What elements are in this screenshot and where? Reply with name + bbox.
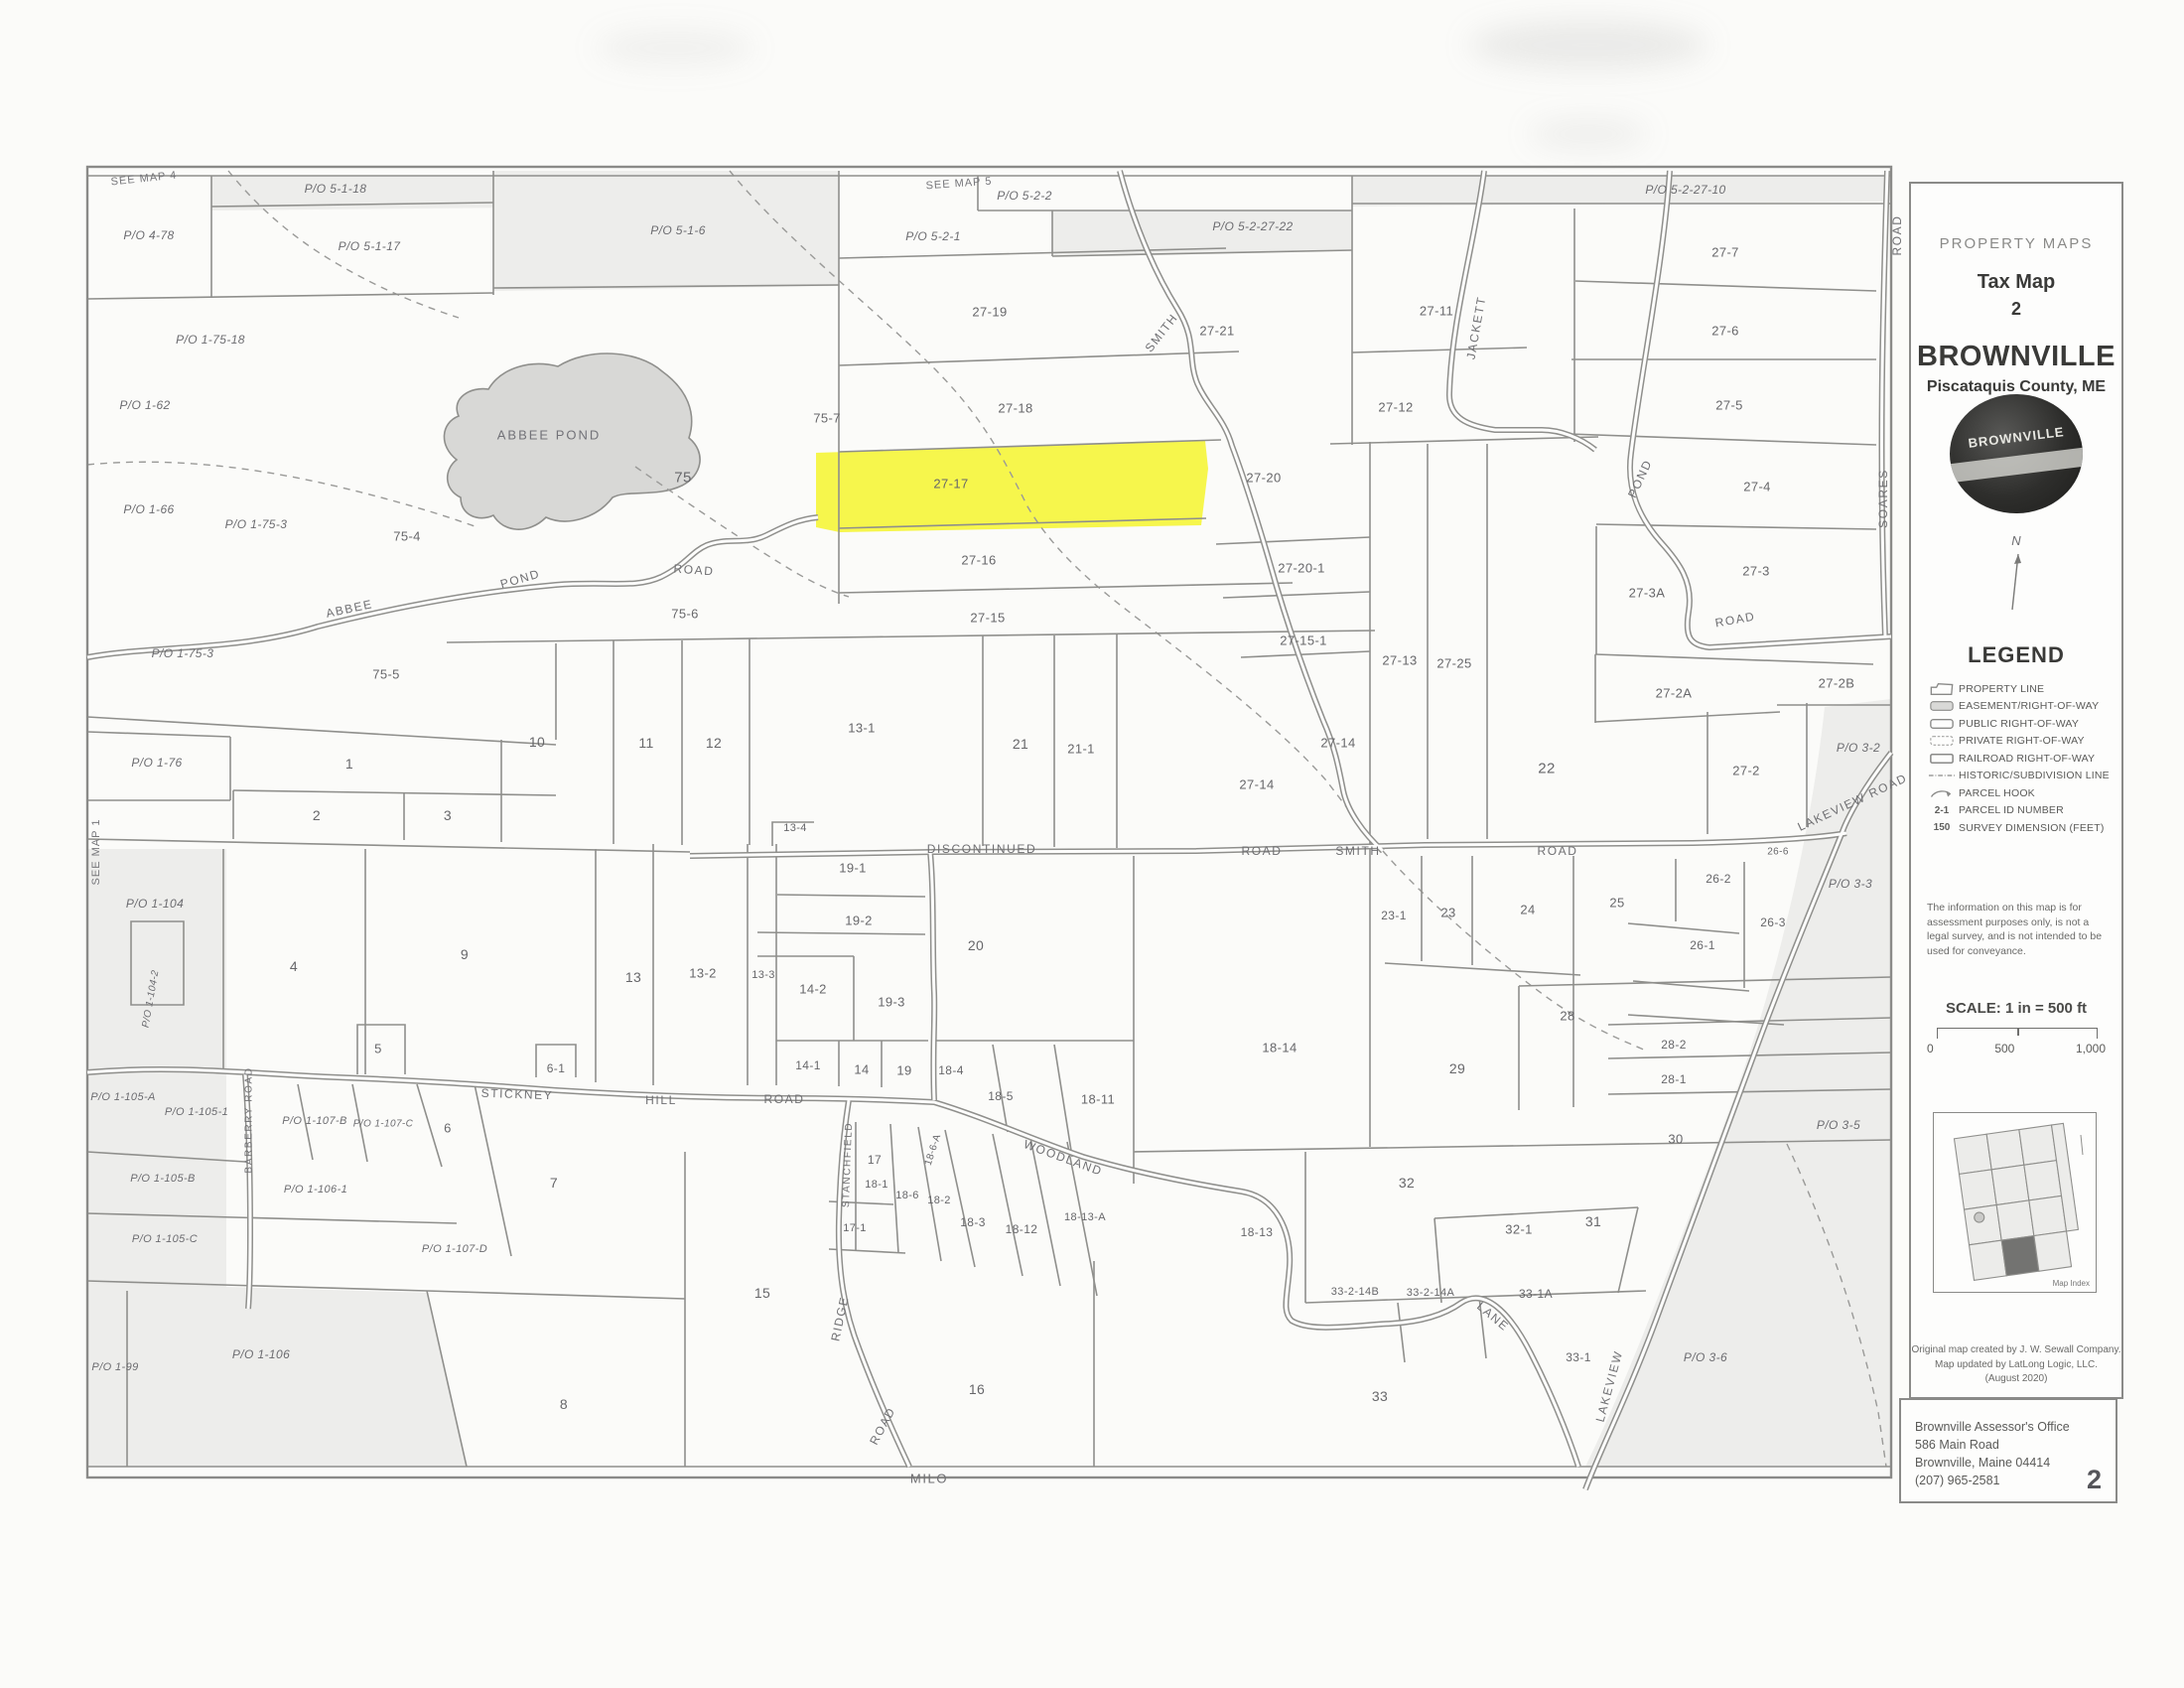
railroad-row-icon: [1925, 753, 1959, 765]
credit-line: (August 2020): [1911, 1372, 2121, 1387]
legend-item-label: RAILROAD RIGHT-OF-WAY: [1959, 753, 2095, 765]
map-number: 2: [1911, 299, 2121, 320]
town-seal-logo: BROWNVILLE: [1950, 394, 2083, 513]
easement-row-icon: [1925, 700, 1959, 712]
parcel-lines: [87, 171, 1891, 1467]
legend-item: 2-1PARCEL ID NUMBER: [1925, 802, 2114, 820]
credit-line: Original map created by J. W. Sewall Com…: [1911, 1343, 2121, 1358]
legend-items: PROPERTY LINEEASEMENT/RIGHT-OF-WAYPUBLIC…: [1925, 680, 2114, 837]
legend-item-label: PARCEL HOOK: [1959, 787, 2035, 799]
historic-line-icon: [1925, 772, 1959, 779]
legend-title: LEGEND: [1911, 642, 2121, 668]
legend-item: 150SURVEY DIMENSION (FEET): [1925, 819, 2114, 837]
office-line: (207) 965-2581: [1915, 1472, 2070, 1489]
credits-text: Original map created by J. W. Sewall Com…: [1911, 1343, 2121, 1387]
scale-label: SCALE: 1 in = 500 ft: [1911, 1000, 2121, 1017]
map-index-label: Map Index: [2053, 1279, 2090, 1288]
public-row-icon: [1925, 718, 1959, 730]
parcel-map: [0, 0, 2184, 1688]
survey-dim-icon: 150: [1925, 822, 1959, 833]
legend-item: PRIVATE RIGHT-OF-WAY: [1925, 733, 2114, 751]
scale-bar: [1937, 1028, 2098, 1039]
legend-item: HISTORIC/SUBDIVISION LINE: [1925, 768, 2114, 785]
legend-item-label: PARCEL ID NUMBER: [1959, 804, 2064, 816]
shaded-parcels: [87, 171, 1891, 1467]
tax-map-sheet: SEE MAP 4SEE MAP 5SEE MAP 1P/O 5-1-18P/O…: [0, 0, 2184, 1688]
legend-item: RAILROAD RIGHT-OF-WAY: [1925, 750, 2114, 768]
page-number: 2: [2087, 1465, 2102, 1495]
legend-item: EASEMENT/RIGHT-OF-WAY: [1925, 698, 2114, 716]
north-arrow: N: [2004, 533, 2028, 619]
scale-ticks: 05001,000: [1927, 1042, 2106, 1055]
map-index-inset: Map Index: [1933, 1112, 2097, 1293]
credit-line: Map updated by LatLong Logic, LLC.: [1911, 1358, 2121, 1373]
parcel-id-icon: 2-1: [1925, 805, 1959, 816]
parcel-hook-icon: [1925, 786, 1959, 800]
legend-item: PARCEL HOOK: [1925, 784, 2114, 802]
panel-header: PROPERTY MAPS: [1911, 235, 2121, 252]
legend-item-label: HISTORIC/SUBDIVISION LINE: [1959, 770, 2110, 781]
legend-item: PROPERTY LINE: [1925, 680, 2114, 698]
office-line: 586 Main Road: [1915, 1436, 2070, 1454]
map-index-grid: [1934, 1113, 2096, 1292]
legend-item-label: SURVEY DIMENSION (FEET): [1959, 822, 2105, 834]
office-line: Brownville Assessor's Office: [1915, 1418, 2070, 1436]
assessor-office-lines: Brownville Assessor's Office586 Main Roa…: [1915, 1418, 2070, 1490]
disclaimer-text: The information on this map is for asses…: [1927, 901, 2106, 959]
scale-tick-label: 1,000: [2076, 1042, 2106, 1055]
town-title: BROWNVILLE: [1911, 341, 2121, 373]
legend-item-label: PUBLIC RIGHT-OF-WAY: [1959, 718, 2079, 730]
legend-item-label: PROPERTY LINE: [1959, 683, 2044, 695]
historic-lines: [87, 171, 1886, 1467]
scale-tick-label: 500: [1994, 1042, 2014, 1055]
logo-band: [1950, 447, 2083, 486]
office-line: Brownville, Maine 04414: [1915, 1454, 2070, 1472]
north-label: N: [2004, 533, 2028, 548]
map-type-title: Tax Map: [1911, 271, 2121, 294]
property-line-icon: [1925, 681, 1959, 697]
highlight-parcel-27-17: [816, 441, 1208, 532]
legend-item: PUBLIC RIGHT-OF-WAY: [1925, 715, 2114, 733]
scale-tick-label: 0: [1927, 1042, 1934, 1055]
abbee-pond: [444, 353, 700, 529]
legend-item-label: EASEMENT/RIGHT-OF-WAY: [1959, 700, 2099, 712]
assessor-office-box: Brownville Assessor's Office586 Main Roa…: [1899, 1398, 2117, 1503]
north-arrow-icon: [2004, 548, 2028, 614]
logo-text: BROWNVILLE: [1950, 422, 2083, 453]
title-panel: PROPERTY MAPS Tax Map 2 BROWNVILLE Pisca…: [1909, 182, 2123, 1399]
private-row-icon: [1925, 735, 1959, 747]
legend-item-label: PRIVATE RIGHT-OF-WAY: [1959, 735, 2085, 747]
